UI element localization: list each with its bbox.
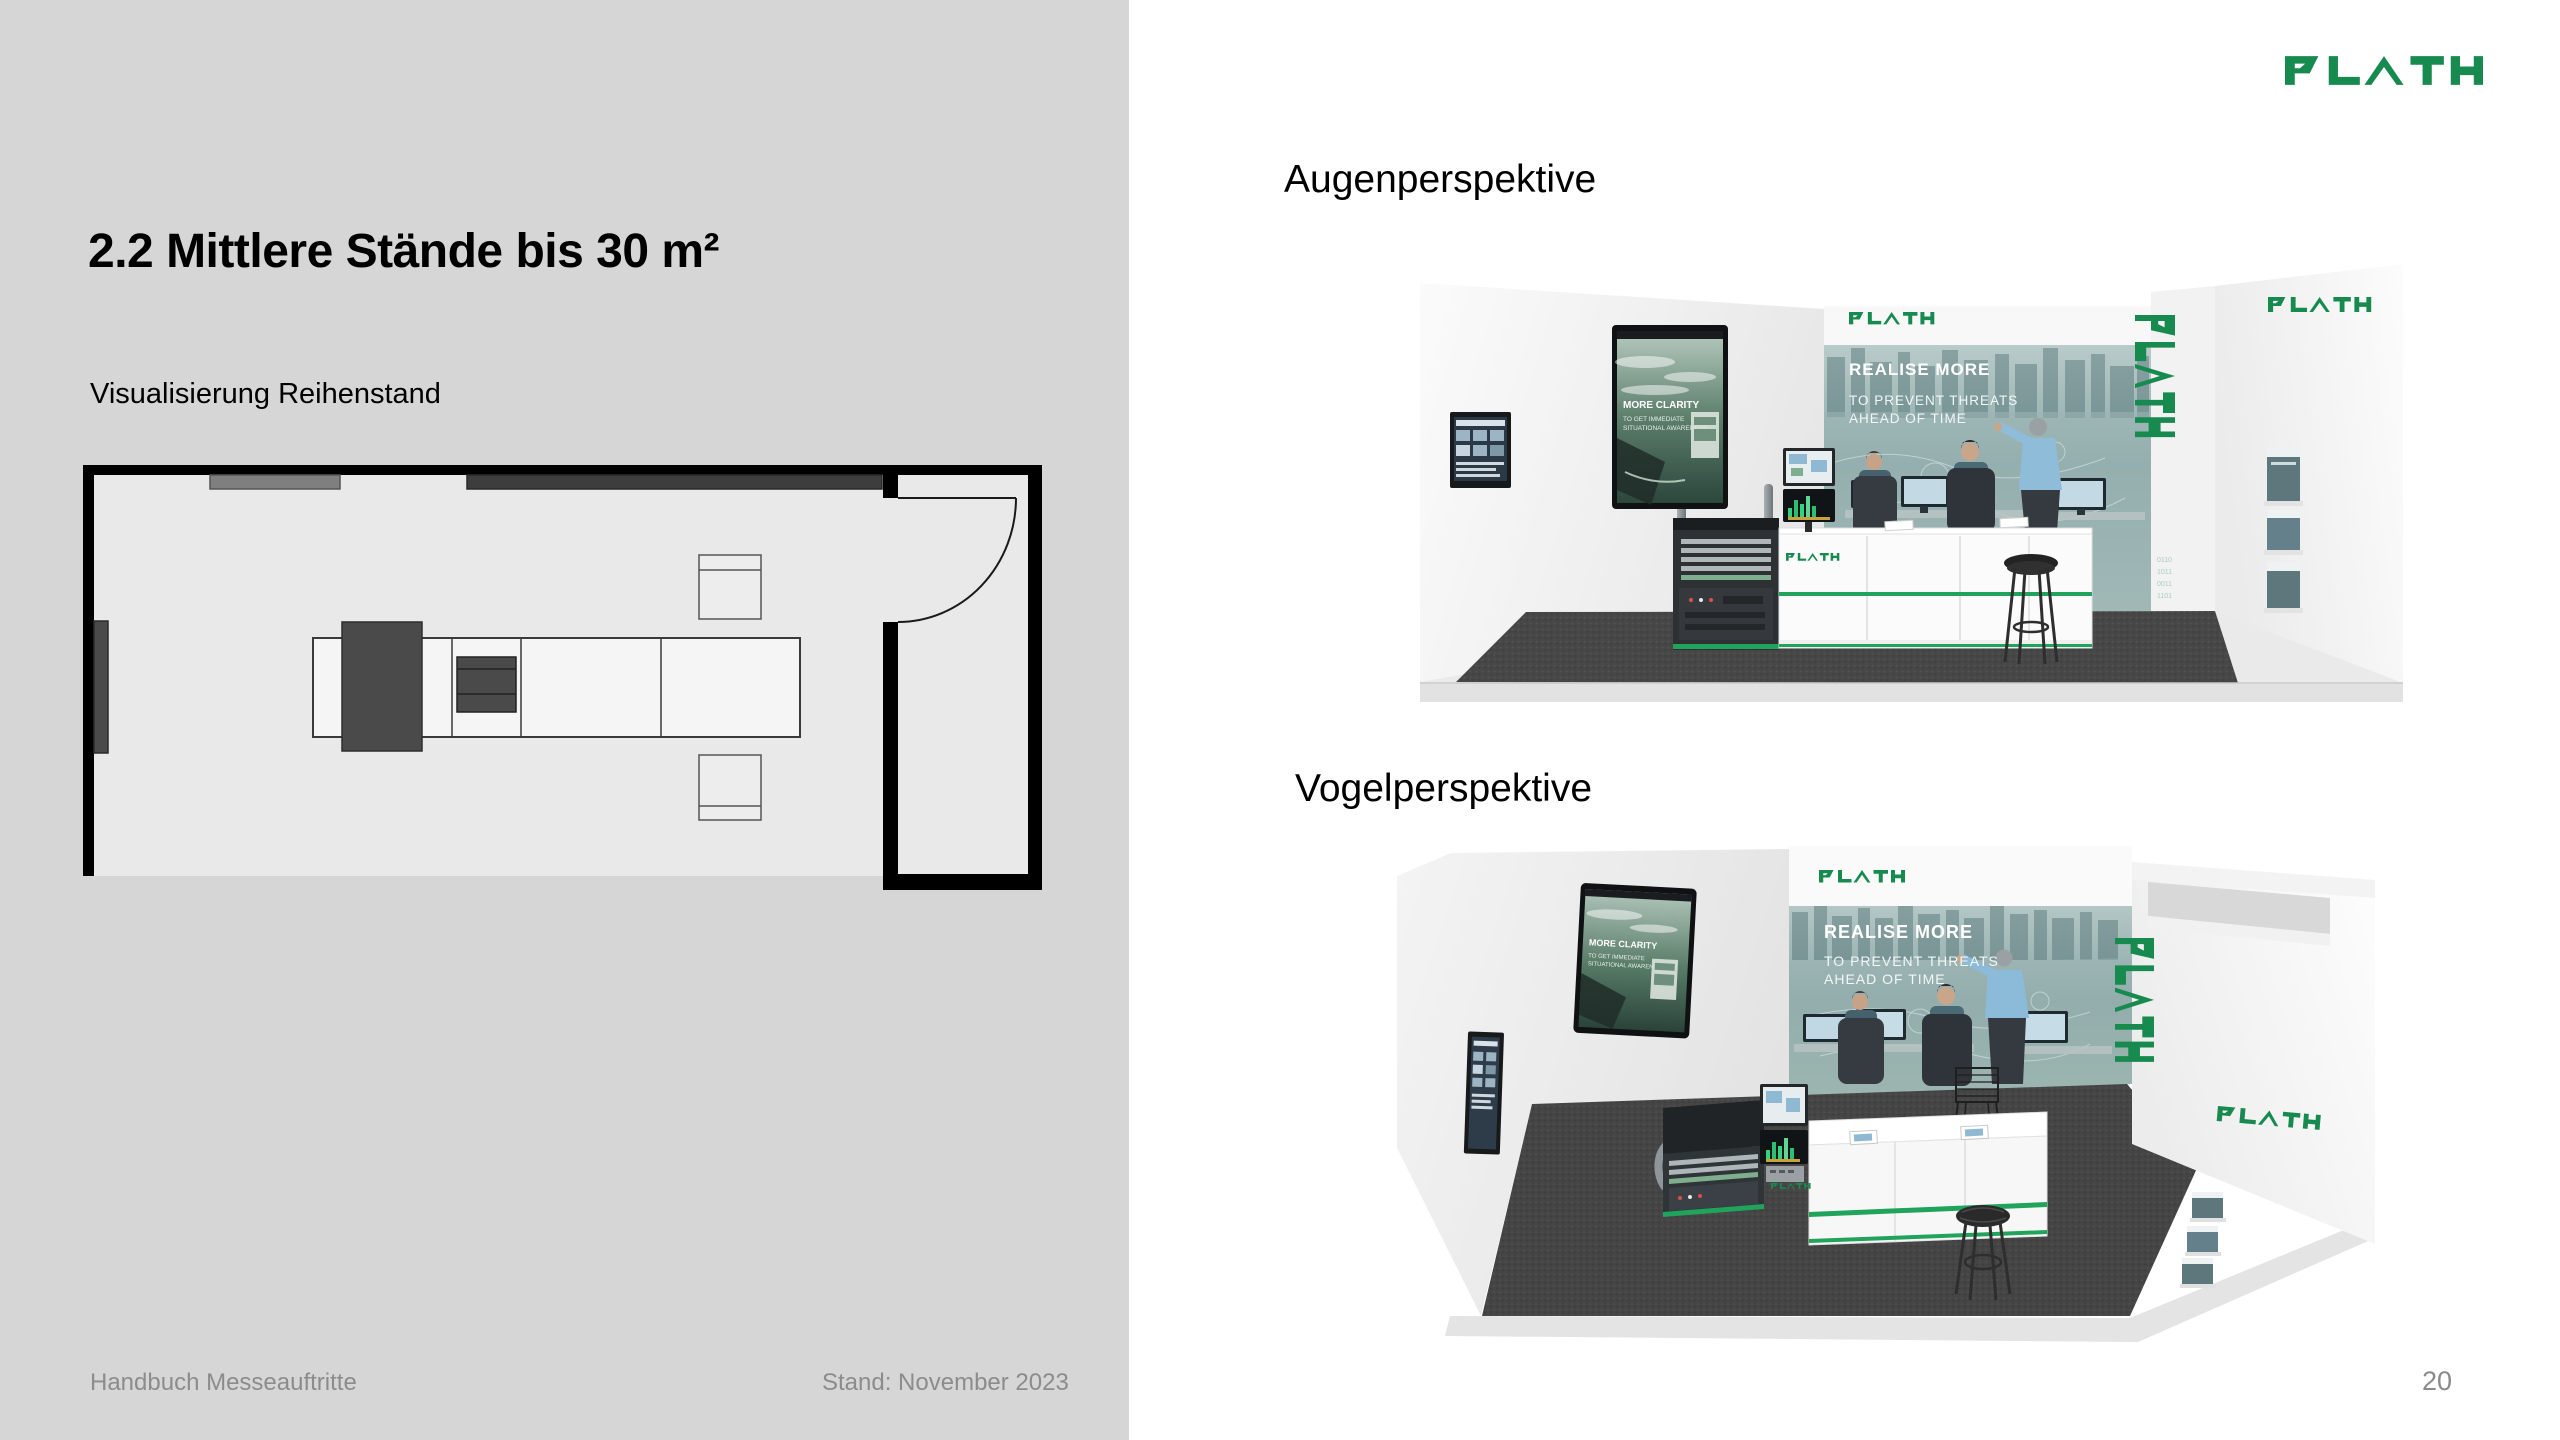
- counter: [1771, 1112, 2047, 1245]
- display-line1: TO GET IMMEDIATE: [1623, 416, 1685, 423]
- svg-text:1011: 1011: [2157, 569, 2172, 576]
- label-eye-perspective: Augenperspektive: [1284, 158, 1596, 202]
- render-bird-view: MORE CLARITY TO GET IMMEDIATE SITUATIONA…: [1390, 846, 2380, 1358]
- portrait-display: MORE CLARITY TO GET IMMEDIATE SITUATIONA…: [1612, 325, 1728, 509]
- footer-version-date: Stand: November 2023: [822, 1369, 1069, 1397]
- portrait-display: MORE CLARITY TO GET IMMEDIATE SITUATIONA…: [1573, 883, 1697, 1039]
- page-title: 2.2 Mittlere Stände bis 30 m²: [88, 224, 719, 279]
- counter-plan: [313, 622, 800, 751]
- footer-document-name: Handbuch Messeauftritte: [90, 1369, 357, 1397]
- display-title: MORE CLARITY: [1623, 400, 1699, 411]
- monitor-stand: [1760, 1084, 1808, 1182]
- left-panel: 2.2 Mittlere Stände bis 30 m² Visualisie…: [0, 0, 1129, 1440]
- wall-tv: [1464, 1031, 1504, 1154]
- svg-text:0011: 0011: [2157, 581, 2172, 588]
- label-bird-perspective: Vogelperspektive: [1295, 767, 1592, 811]
- server-rack: [1658, 1100, 1764, 1217]
- counter: [1779, 517, 2092, 648]
- plath-logo: [2285, 56, 2483, 85]
- brochure-holders: [2264, 447, 2303, 613]
- wall-tv: [1450, 412, 1511, 488]
- backwall-subline2: AHEAD OF TIME: [1824, 971, 1946, 987]
- platform-edge: [1420, 683, 2403, 702]
- backwall-subline1: TO PREVENT THREATS: [1824, 953, 1999, 969]
- monitor-stand: [1783, 448, 1835, 532]
- page-number: 20: [2422, 1366, 2452, 1397]
- svg-text:1101: 1101: [2157, 593, 2172, 600]
- floorplan-drawing: [83, 462, 1043, 892]
- brochure-holders: [2180, 1192, 2226, 1288]
- section-subtitle: Visualisierung Reihenstand: [90, 378, 441, 411]
- slide-canvas: 2.2 Mittlere Stände bis 30 m² Visualisie…: [0, 0, 2560, 1440]
- backwall-headline: REALISE MORE: [1824, 922, 1973, 942]
- right-wall: [2215, 264, 2403, 683]
- render-eye-view: 0110101100111101: [1415, 262, 2415, 707]
- storage-pillar: [2151, 286, 2215, 614]
- svg-text:0110: 0110: [2157, 557, 2172, 564]
